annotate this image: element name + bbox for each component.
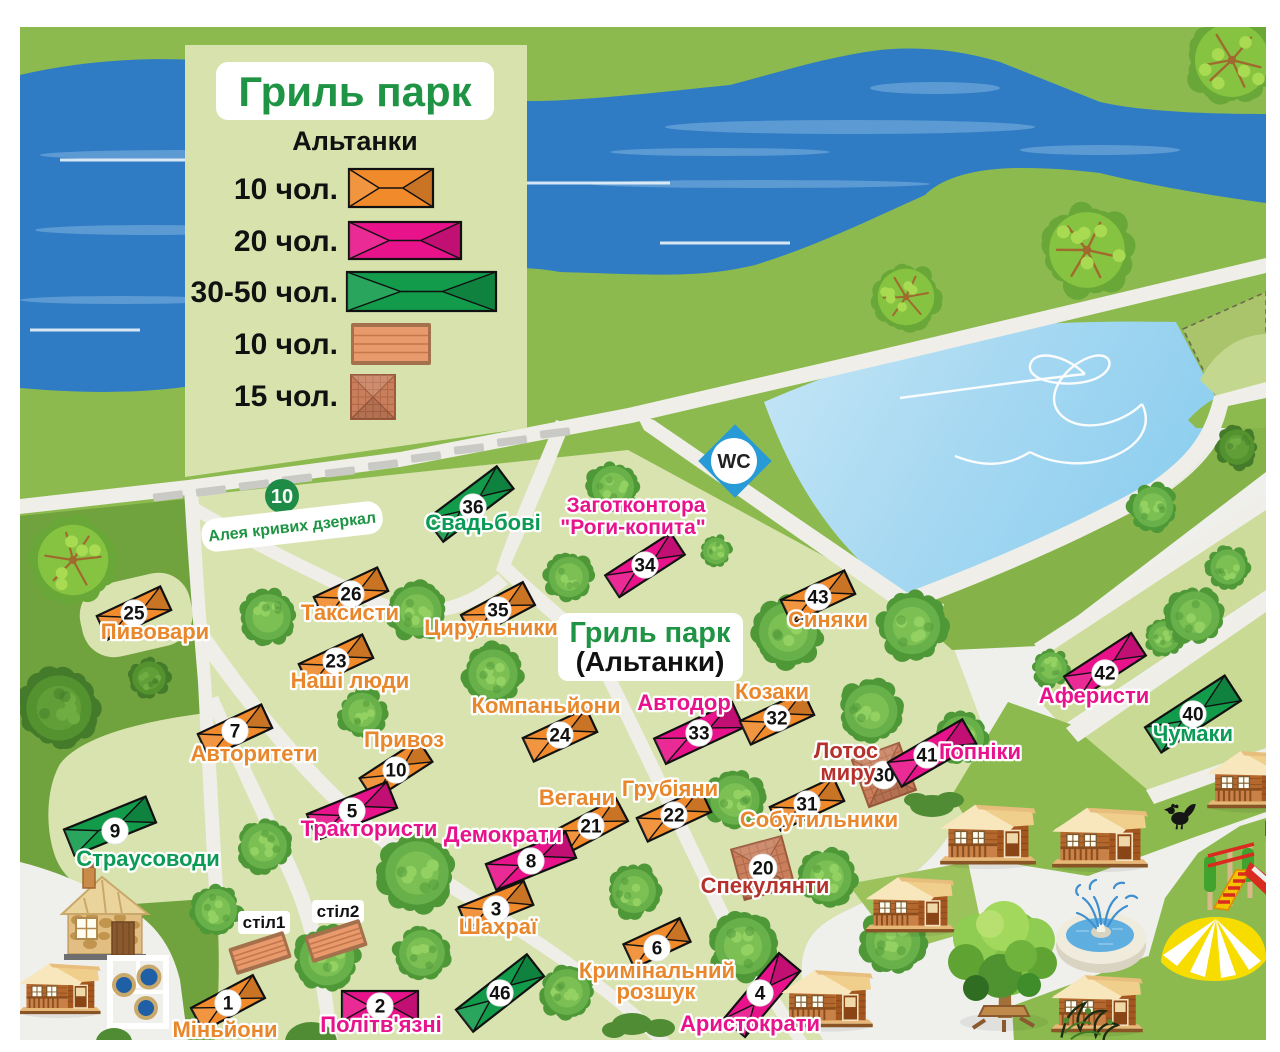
svg-text:30-50 чол.: 30-50 чол. <box>191 276 338 309</box>
svg-text:21: 21 <box>580 817 602 838</box>
svg-text:10: 10 <box>271 486 293 508</box>
svg-text:4: 4 <box>755 984 766 1005</box>
svg-text:6: 6 <box>652 939 663 960</box>
svg-text:Шахраї: Шахраї <box>459 914 538 939</box>
svg-text:Авторитети: Авторитети <box>190 741 317 766</box>
svg-text:миру: миру <box>820 760 876 785</box>
svg-text:(Альтанки): (Альтанки) <box>576 646 725 677</box>
svg-text:34: 34 <box>634 556 656 577</box>
svg-text:Демократи: Демократи <box>444 822 562 847</box>
svg-text:розшук: розшук <box>616 979 696 1004</box>
svg-text:Міньйони: Міньйони <box>172 1017 277 1042</box>
svg-text:Автодор: Автодор <box>637 690 731 715</box>
svg-text:Грубіяни: Грубіяни <box>622 776 718 801</box>
svg-text:9: 9 <box>110 822 121 843</box>
svg-text:Заготконтора: Заготконтора <box>567 494 706 517</box>
svg-text:Страусоводи: Страусоводи <box>76 846 220 871</box>
svg-text:стіл1: стіл1 <box>243 913 286 932</box>
svg-text:1: 1 <box>223 994 234 1015</box>
svg-text:Гриль парк: Гриль парк <box>238 68 472 115</box>
svg-text:15 чол.: 15 чол. <box>234 380 338 413</box>
svg-text:42: 42 <box>1094 664 1115 685</box>
svg-text:Привоз: Привоз <box>364 727 444 752</box>
svg-text:Цирульники: Цирульники <box>424 615 558 640</box>
svg-text:Собутильники: Собутильники <box>740 807 898 832</box>
svg-text:Аристократи: Аристократи <box>680 1011 820 1036</box>
svg-text:10 чол.: 10 чол. <box>234 328 338 361</box>
svg-text:Трактористи: Трактористи <box>301 816 438 841</box>
svg-text:43: 43 <box>807 588 828 609</box>
svg-text:22: 22 <box>663 806 684 827</box>
svg-text:7: 7 <box>230 722 241 743</box>
svg-text:Гопніки: Гопніки <box>939 739 1021 764</box>
svg-text:Свадьбові: Свадьбові <box>425 510 541 535</box>
svg-text:33: 33 <box>688 724 709 745</box>
svg-text:Політв'язні: Політв'язні <box>320 1012 442 1037</box>
svg-text:Синяки: Синяки <box>788 607 868 632</box>
svg-text:46: 46 <box>489 984 510 1005</box>
svg-text:стіл2: стіл2 <box>317 902 360 921</box>
svg-text:Наші люди: Наші люди <box>291 668 410 693</box>
svg-text:Гриль парк: Гриль парк <box>569 617 731 649</box>
svg-text:"Роги-копита": "Роги-копита" <box>560 516 706 539</box>
svg-text:20 чол.: 20 чол. <box>234 225 338 258</box>
svg-text:24: 24 <box>549 726 571 747</box>
svg-text:Пивовари: Пивовари <box>101 619 209 644</box>
svg-text:Таксисти: Таксисти <box>301 600 399 625</box>
svg-text:Козаки: Козаки <box>735 679 809 704</box>
svg-text:41: 41 <box>916 746 938 767</box>
svg-text:Компаньйони: Компаньйони <box>472 693 621 718</box>
svg-text:Альтанки: Альтанки <box>292 126 418 156</box>
svg-text:Чумаки: Чумаки <box>1153 721 1233 746</box>
svg-text:Вегани: Вегани <box>539 785 615 810</box>
svg-text:10 чол.: 10 чол. <box>234 173 338 206</box>
svg-text:WC: WC <box>717 451 750 473</box>
svg-text:Спекулянти: Спекулянти <box>701 873 830 898</box>
svg-text:8: 8 <box>526 852 537 873</box>
svg-text:32: 32 <box>766 709 787 730</box>
svg-text:10: 10 <box>385 761 406 782</box>
svg-text:Аферисти: Аферисти <box>1039 683 1150 708</box>
